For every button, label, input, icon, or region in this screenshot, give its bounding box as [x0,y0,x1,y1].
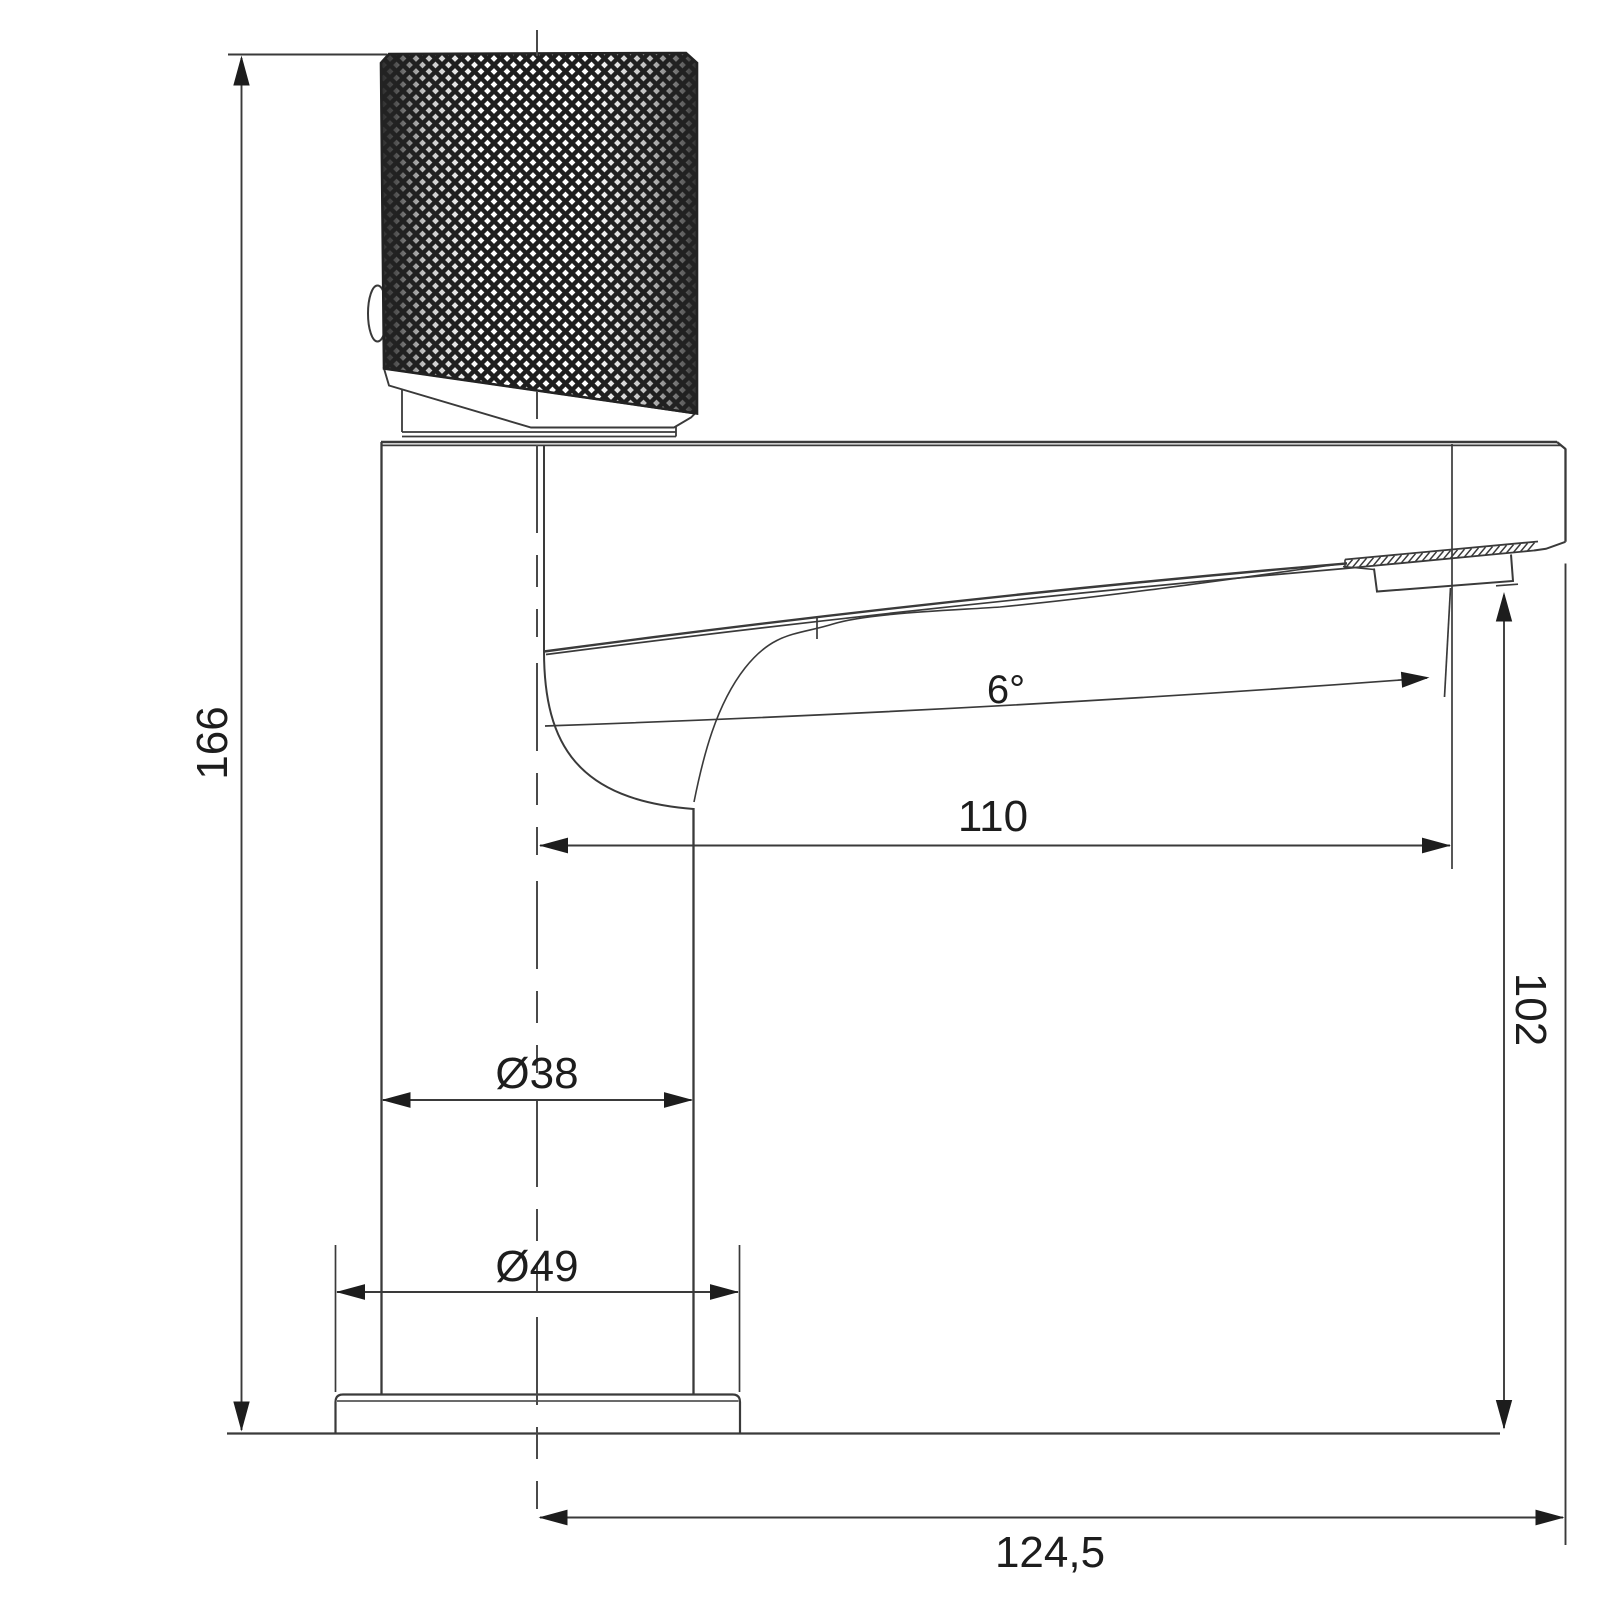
svg-text:110: 110 [958,792,1028,841]
svg-text:Ø38: Ø38 [495,1049,578,1098]
svg-text:Ø49: Ø49 [495,1242,578,1291]
svg-text:166: 166 [188,706,237,779]
svg-text:124,5: 124,5 [995,1528,1105,1577]
svg-text:102: 102 [1506,973,1555,1046]
svg-text:6°: 6° [987,668,1025,712]
